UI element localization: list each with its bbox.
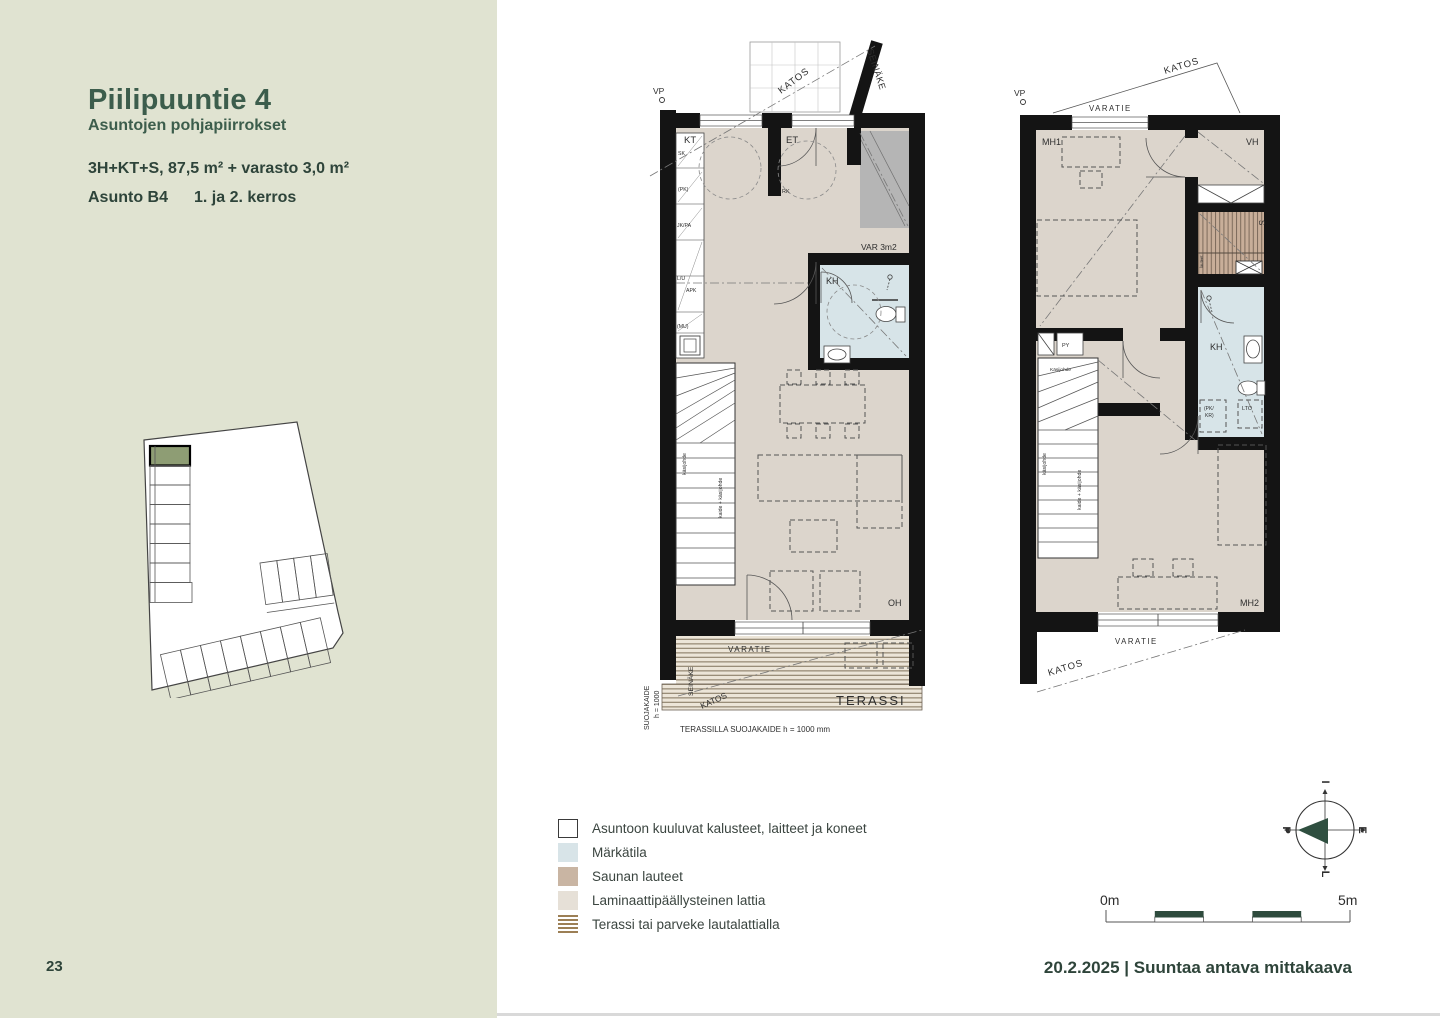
floor1-terrace-upper	[676, 636, 909, 684]
label-guard-2: h = 1000	[654, 690, 661, 718]
floor1-plan: VP KATOS SEINÄKE KT ET RK VAR 3m2 KH SK …	[640, 28, 940, 743]
label-pk: (PK)	[678, 187, 689, 193]
site-key-plan	[138, 413, 348, 698]
label-oh: OH	[888, 598, 902, 608]
legend-item: Laminaattipäällysteinen lattia	[558, 888, 867, 912]
brochure-page: Piilipuuntie 4 Asuntojen pohjapiirrokset…	[0, 0, 1440, 1018]
label-var: VAR 3m2	[861, 242, 897, 252]
legend-label: Terassi tai parveke lautalattialla	[592, 917, 780, 932]
legend-swatch-laminate	[558, 891, 578, 910]
sidebar: Piilipuuntie 4 Asuntojen pohjapiirrokset…	[0, 0, 497, 1018]
page-bottom-rule	[497, 1013, 1440, 1016]
label-sauna: S	[1257, 220, 1266, 225]
legend-item: Asuntoon kuuluvat kalusteet, laitteet ja…	[558, 816, 867, 840]
site-unit-highlight	[150, 446, 190, 466]
label-et: ET	[786, 135, 798, 146]
label-seinake-bottom: SEINÄKE	[687, 666, 695, 696]
label-mh1: MH1	[1042, 137, 1061, 147]
legend-swatch-sauna-benches	[558, 867, 578, 886]
terrace-note: TERASSILLA SUOJAKAIDE h = 1000 mm	[680, 725, 830, 734]
page-subtitle: Asuntojen pohjapiirrokset	[88, 117, 286, 135]
vp-symbol-2	[1021, 100, 1026, 105]
label-py: PY	[1062, 343, 1070, 349]
label-mu: (MU)	[677, 324, 689, 330]
label-guard-1: SUOJAKAIDE	[644, 685, 651, 730]
label-rk: RK	[782, 189, 790, 195]
label-mh2: MH2	[1240, 598, 1259, 608]
label-stair1-1: käsijohde	[682, 453, 688, 475]
label-stair2-1: kaide + käsijohde	[718, 478, 724, 518]
label-sk: SK	[678, 151, 685, 157]
legend-swatch-terrace	[558, 915, 578, 934]
label-pk-kr-1: (PK/	[1204, 406, 1214, 412]
label-terassi: TERASSI	[836, 693, 906, 708]
label-kh-1: KH	[826, 276, 839, 286]
label-kh-2: KH	[1210, 342, 1223, 352]
label-jk-pa: JK/PA	[677, 223, 692, 229]
label-apk: APK	[686, 288, 697, 294]
apartment-line: Asunto B41. ja 2. kerros	[88, 189, 296, 207]
legend-label: Asuntoon kuuluvat kalusteet, laitteet ja…	[592, 821, 867, 836]
label-vp-2: VP	[1014, 88, 1026, 98]
vp-symbol-1	[660, 98, 665, 103]
label-varatie-bottom: VARATIE	[1115, 637, 1158, 646]
label-lu: L/U	[677, 276, 685, 282]
legend-label: Märkätila	[592, 845, 647, 860]
page-title: Piilipuuntie 4	[88, 84, 271, 117]
compass-letter-right: E	[1356, 826, 1367, 833]
compass-rose: I E L P	[1283, 778, 1367, 878]
legend-item: Märkätila	[558, 840, 867, 864]
label-vh: VH	[1246, 137, 1259, 147]
legend-swatch-fixtures	[558, 819, 578, 838]
label-lto: LTO	[1242, 406, 1253, 412]
legend-label: Laminaattipäällysteinen lattia	[592, 893, 765, 908]
legend-swatch-wet-room	[558, 843, 578, 862]
legend-label: Saunan lauteet	[592, 869, 683, 884]
label-varatie-top: VARATIE	[1089, 104, 1132, 113]
label-varatie-1: VARATIE	[728, 645, 772, 654]
page-number: 23	[46, 958, 63, 975]
scale-end-label: 5m	[1338, 892, 1357, 908]
floor2-katos-top	[1053, 63, 1240, 113]
apartment-floors: 1. ja 2. kerros	[194, 189, 296, 206]
label-stair1-2: käsijohde	[1042, 453, 1048, 475]
apartment-spec: 3H+KT+S, 87,5 m² + varasto 3,0 m²	[88, 160, 349, 178]
scale-start-label: 0m	[1100, 892, 1119, 908]
label-lauteet: lauteet	[1199, 255, 1204, 268]
legend-item: Terassi tai parveke lautalattialla	[558, 912, 867, 936]
floor2-plan: VP KATOS VARATIE MH1 VH S lauteet PY KH …	[1005, 40, 1295, 720]
label-vp-1: VP	[653, 86, 665, 96]
compass-letter-top: I	[1319, 780, 1331, 783]
compass-letter-left: P	[1283, 826, 1292, 833]
legend: Asuntoon kuuluvat kalusteet, laitteet ja…	[558, 816, 867, 936]
compass-needle	[1298, 818, 1328, 844]
label-katos-bottom-2: KATOS	[1047, 658, 1085, 679]
apartment-id: Asunto B4	[88, 189, 168, 206]
scale-bar: 0m 5m	[1096, 891, 1360, 927]
compass-letter-bottom: L	[1319, 871, 1331, 878]
legend-item: Saunan lauteet	[558, 864, 867, 888]
label-kt: KT	[684, 135, 696, 146]
label-pk-kr-2: KR)	[1205, 413, 1214, 419]
label-stair2-2: kaide + käsijohde	[1077, 470, 1083, 510]
label-kasijohde-top: Käsijohde	[1050, 367, 1071, 373]
footer-caption: 20.2.2025 | Suuntaa antava mittakaava	[1044, 958, 1352, 978]
